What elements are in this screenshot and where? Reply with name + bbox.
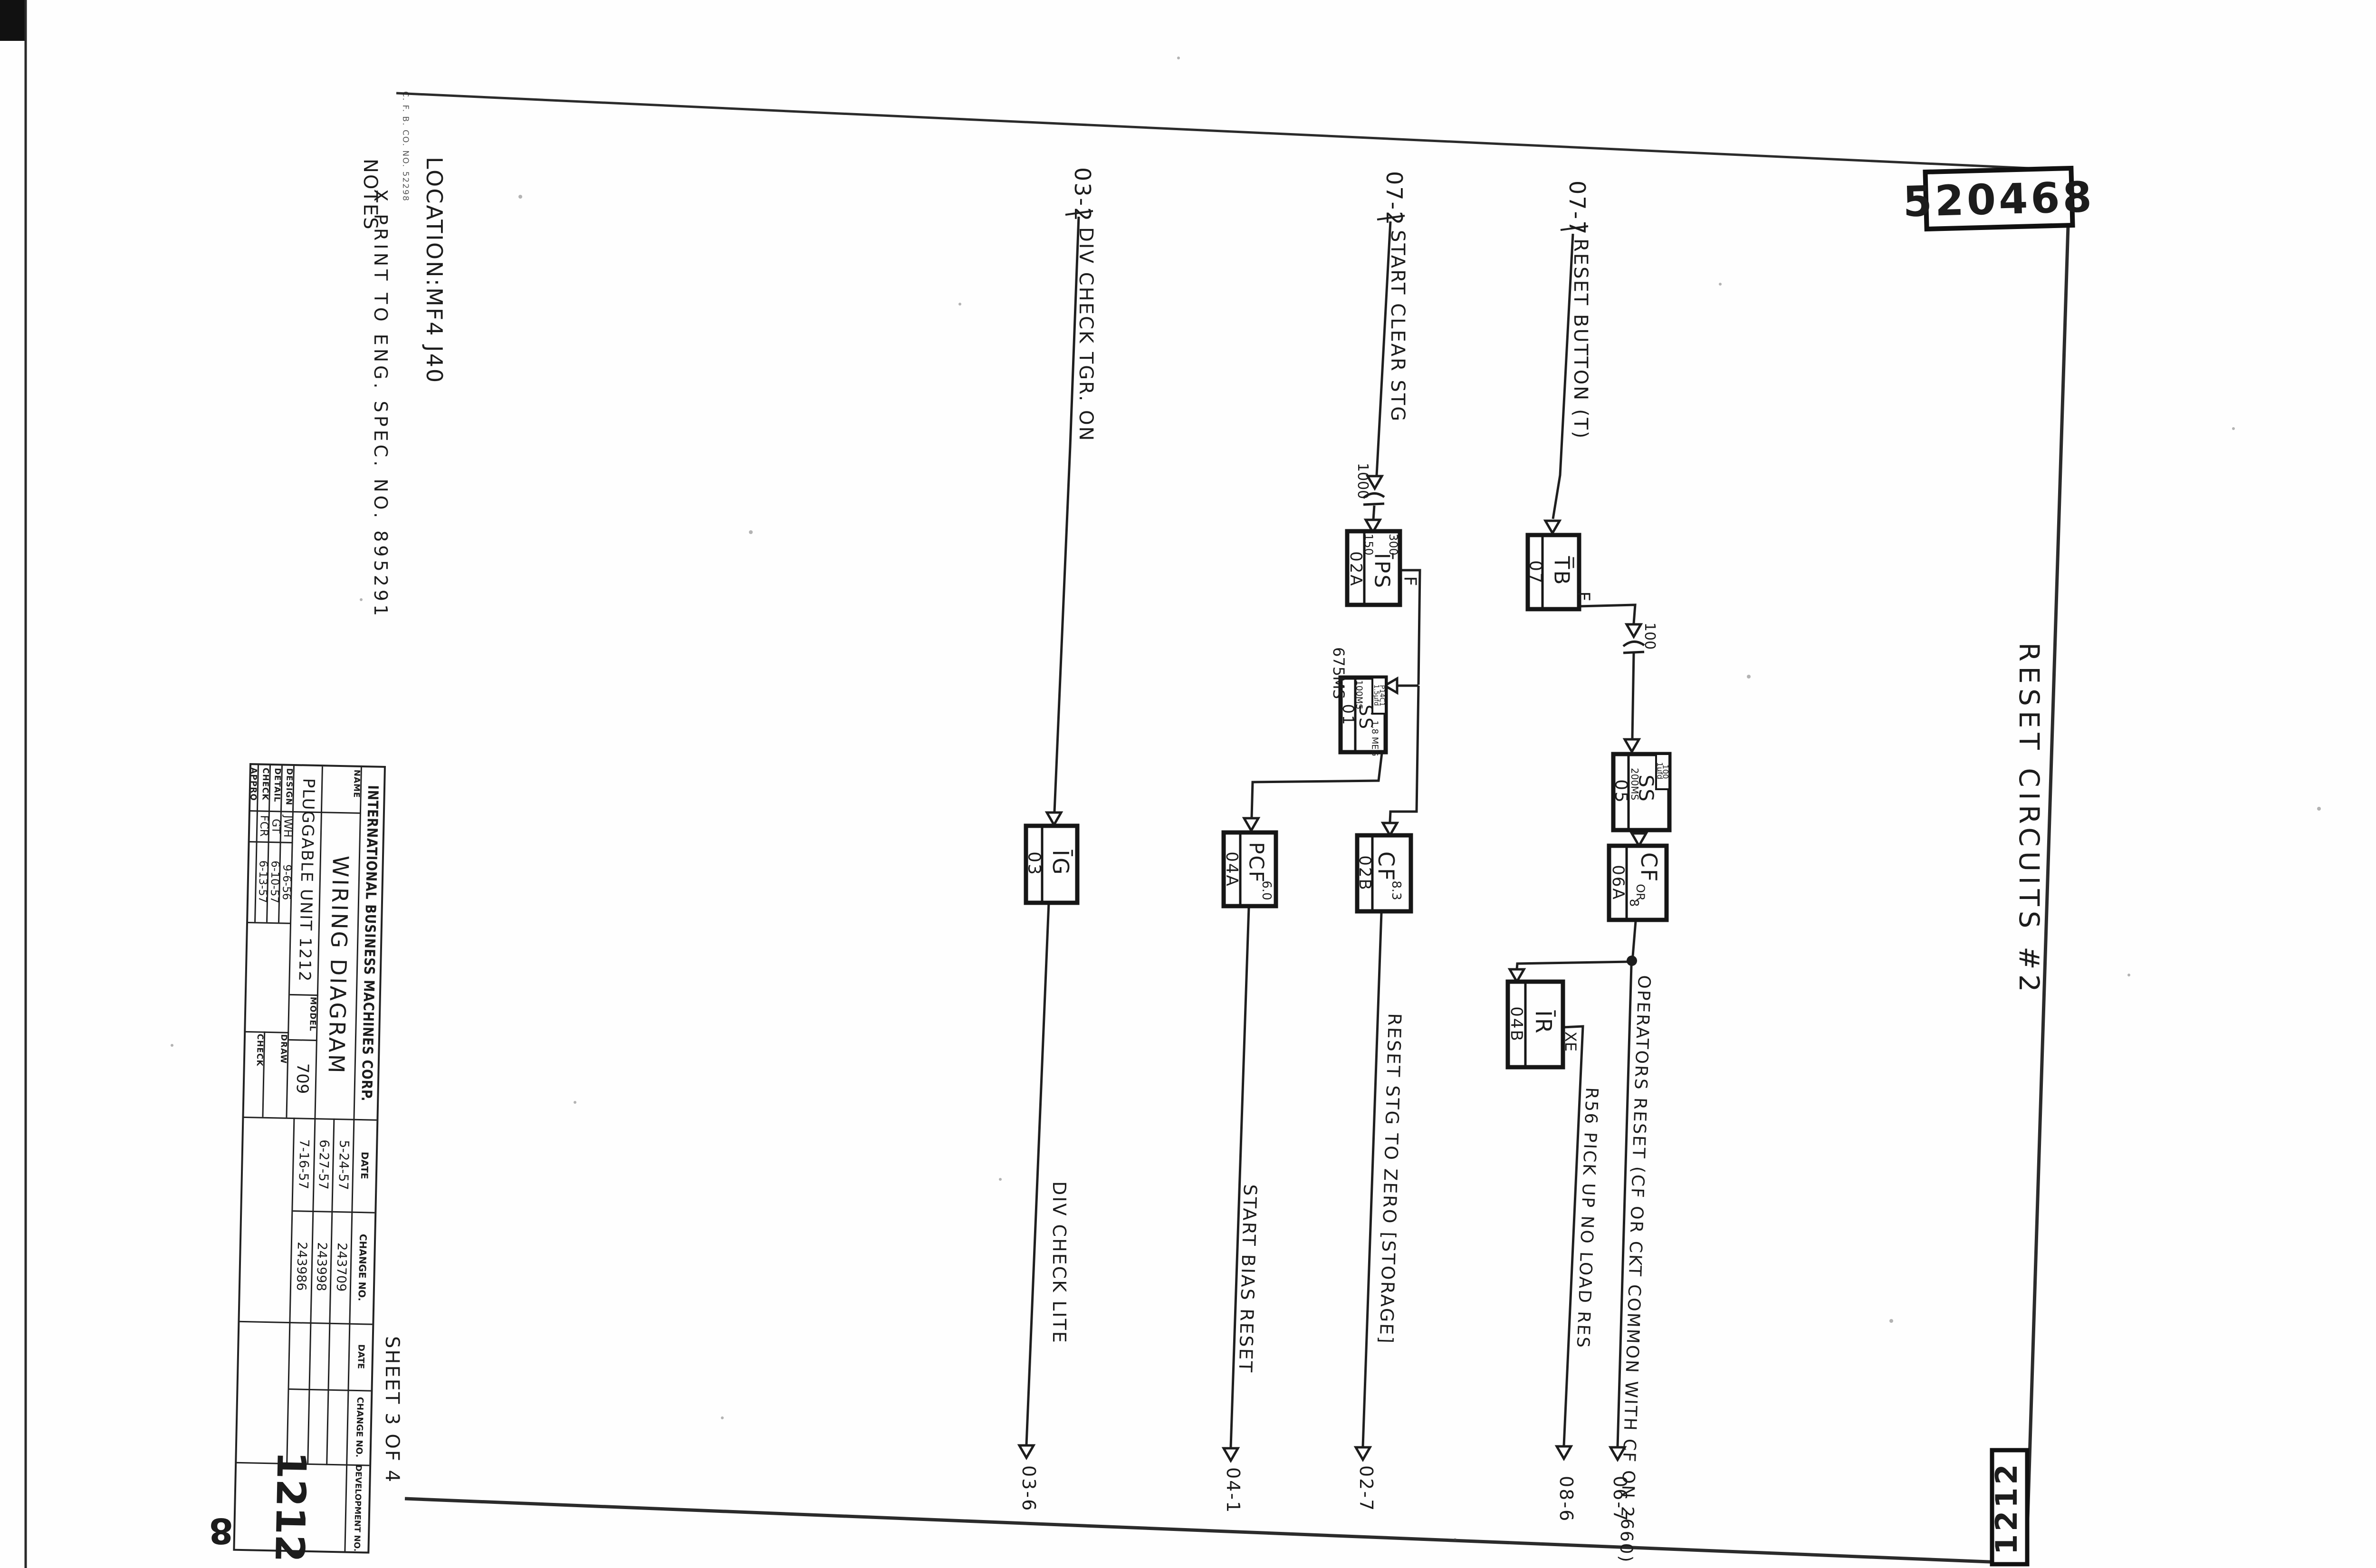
sheet-number: SHEET 3 OF 4 bbox=[381, 1336, 403, 1483]
note-print-spec: X PRINT TO ENG. SPEC. NO. 895291 bbox=[370, 189, 391, 619]
wire-node-to-ir bbox=[1517, 962, 1631, 969]
src-ref-03-2: 03-2 bbox=[1070, 167, 1095, 222]
development-header: DEVELOPMENT NO. bbox=[345, 1464, 369, 1552]
cap2-curve-icon bbox=[1623, 641, 1644, 646]
ss1-t2: 1.8 MEG bbox=[1370, 720, 1380, 756]
change-no-1: 243709 bbox=[330, 1211, 353, 1323]
ss1-delay-label: 675MS bbox=[1330, 647, 1348, 699]
check-date: 6-13-57 bbox=[256, 841, 269, 922]
pcf-val: 6.0 bbox=[1259, 880, 1274, 900]
location-label: LOCATION:MF4 J40 bbox=[422, 157, 447, 384]
drawing-number-top: 520468 bbox=[1902, 172, 2095, 227]
date-header-2: DATE bbox=[349, 1323, 372, 1390]
corner-marks: 520468 520468 1212 bbox=[206, 168, 2095, 1564]
wire-cap1-out bbox=[1373, 506, 1374, 520]
cf02b-val: 8.3 bbox=[1389, 880, 1403, 900]
model-label: MODEL bbox=[287, 994, 318, 1042]
junction-dot bbox=[1627, 956, 1637, 966]
check-initials: FCR bbox=[258, 810, 270, 841]
model-value: 709 bbox=[287, 1039, 317, 1118]
title-block: INTERNATIONAL BUSINESS MACHINES CORP. NA… bbox=[233, 763, 386, 1554]
pcf-type: PCF bbox=[1245, 842, 1268, 884]
signal-labels: 03-2 DIV CHECK TGR. ON 07-2 START CLEAR … bbox=[1018, 167, 1658, 1564]
ir-out-xe: XE bbox=[1562, 1032, 1580, 1052]
wire-ss1-to-pcf bbox=[1252, 753, 1382, 817]
arrow-into-ig bbox=[1047, 813, 1061, 825]
change-no-2: 243998 bbox=[310, 1211, 333, 1323]
name-label: NAME bbox=[321, 766, 362, 815]
ss1-c2: P14C1 bbox=[1378, 685, 1386, 707]
cap1-value: 1000 bbox=[1354, 463, 1371, 499]
wire-cf06a-out bbox=[1633, 921, 1636, 956]
design-initials: JWH bbox=[281, 811, 294, 842]
appro-label: APPRO bbox=[248, 765, 259, 813]
name-line1: WIRING DIAGRAM bbox=[316, 812, 361, 1119]
dest-04-1: 04-1 bbox=[1223, 1467, 1244, 1514]
drawing-title: RESET CIRCUITS #2 bbox=[2013, 642, 2045, 997]
frame-top bbox=[396, 93, 2070, 170]
cap2-value: 100 bbox=[1641, 622, 1658, 650]
src-name-div-check: DIV CHECK TGR. ON bbox=[1075, 227, 1097, 442]
ig-loc: 03 bbox=[1025, 851, 1044, 876]
cf06a-loc: 06A bbox=[1609, 865, 1628, 901]
ss2-c2: 100 bbox=[1661, 765, 1670, 779]
unit-number: 1212 bbox=[1989, 1461, 2024, 1555]
out-name-div-check-lite: DIV CHECK LITE bbox=[1049, 1181, 1070, 1344]
detail-initials: GT bbox=[269, 811, 282, 842]
wire-div-check-out bbox=[1026, 903, 1049, 1444]
detail-date: 6-10-57 bbox=[268, 841, 281, 922]
out-name-r56-pickup: R56 PICK UP NO LOAD RES bbox=[1573, 1087, 1601, 1349]
change-date-3: 7-16-57 bbox=[293, 1118, 315, 1211]
arrow-into-pcf bbox=[1244, 818, 1258, 831]
ips-out-f: F bbox=[1400, 576, 1420, 586]
ss1-t1: 100MS bbox=[1354, 680, 1364, 709]
src-name-reset-button: RESET BUTTON (T) bbox=[1570, 239, 1591, 440]
cf06a-val2: 8 bbox=[1627, 899, 1641, 907]
sheet-labels: RESET CIRCUITS #2 LOCATION:MF4 J40 NOTES… bbox=[359, 91, 2045, 1483]
out-name-reset-stg-zero: RESET STG TO ZERO [STORAGE] bbox=[1376, 1013, 1405, 1345]
design-date: 9-6-56 bbox=[279, 841, 293, 922]
tb-type: T̅B bbox=[1550, 555, 1575, 586]
change-header-1: CHANGE NO. bbox=[350, 1212, 374, 1324]
ips-loc: 02A bbox=[1346, 551, 1365, 587]
fine-print: C. F. B. CO. NO. 52298 bbox=[401, 91, 410, 202]
cf06a-type: CF bbox=[1636, 852, 1662, 883]
check2-label: CHECK bbox=[241, 1031, 265, 1119]
cf06a-val1: OR bbox=[1634, 884, 1647, 901]
ss2-loc: 05 bbox=[1611, 779, 1631, 804]
tb-out-f: F bbox=[1574, 592, 1593, 602]
coupling-symbols bbox=[1363, 476, 1644, 653]
wire-ips-f-out bbox=[1400, 570, 1420, 685]
ir-loc: 04B bbox=[1507, 1006, 1526, 1042]
src-name-start-clear: START CLEAR STG bbox=[1387, 230, 1408, 422]
ips-type: ĪPS bbox=[1370, 553, 1395, 589]
block-labels: 03 ĪG 02A ĪPS 300 150 F 07 T̅B F 01 SS 1… bbox=[1025, 534, 1670, 1052]
cf02b-loc: 02B bbox=[1355, 855, 1374, 891]
cap2-arrow-icon bbox=[1627, 624, 1641, 637]
ips-r2: 150 bbox=[1362, 534, 1375, 555]
change-date-2: 6-27-57 bbox=[313, 1118, 335, 1211]
wire-branch-cf02b bbox=[1390, 686, 1418, 822]
change-no-3: 243986 bbox=[290, 1210, 313, 1322]
pcf-loc: 04A bbox=[1222, 851, 1241, 888]
arrow-dest-08-6 bbox=[1557, 1446, 1571, 1459]
development-no: 1212 bbox=[234, 1462, 347, 1552]
cap1-bar-icon bbox=[1363, 504, 1384, 505]
arrow-dest-03-6 bbox=[1019, 1445, 1034, 1458]
date-header-1: DATE bbox=[353, 1119, 376, 1212]
name-line2: PLUGGABLE UNIT 1212 bbox=[290, 766, 323, 994]
wire-cf02b-out bbox=[1363, 913, 1381, 1446]
frame-bottom bbox=[405, 1499, 2025, 1563]
arrow-into-ss2 bbox=[1625, 739, 1639, 752]
src-ref-07-2: 07-2 bbox=[1381, 171, 1407, 226]
ir-type: ĪR bbox=[1531, 1010, 1556, 1035]
wire-tb-f-out bbox=[1579, 605, 1635, 623]
change-date-1: 5-24-57 bbox=[333, 1119, 354, 1212]
dest-06-7: 06-7 bbox=[1610, 1476, 1630, 1522]
draw-label: DRAW bbox=[262, 1032, 289, 1120]
arrow-into-tb bbox=[1545, 521, 1560, 533]
logic-blocks bbox=[1026, 531, 1669, 1067]
arrow-dest-02-7 bbox=[1356, 1447, 1370, 1460]
tb-loc: 07 bbox=[1526, 560, 1545, 585]
ig-type: ĪG bbox=[1048, 850, 1073, 876]
arrow-dest-04-1 bbox=[1224, 1448, 1238, 1461]
ips-r1: 300 bbox=[1387, 534, 1400, 555]
src-ref-07-7: 07-7 bbox=[1564, 181, 1590, 236]
wire-cap2-out bbox=[1632, 653, 1634, 738]
ss2-t1: 200MS bbox=[1629, 768, 1640, 800]
change-header-2: CHANGE NO. bbox=[347, 1390, 371, 1465]
wires bbox=[1026, 211, 1640, 1447]
scanned-wiring-diagram: 03 ĪG 02A ĪPS 300 150 F 07 T̅B F 01 SS 1… bbox=[0, 0, 2376, 1568]
cap2-bar-icon bbox=[1623, 652, 1644, 653]
cf02b-type: CF bbox=[1373, 851, 1399, 882]
scan-corner-blob bbox=[0, 0, 27, 41]
dest-08-6: 08-6 bbox=[1556, 1476, 1577, 1522]
dest-02-7: 02-7 bbox=[1356, 1465, 1377, 1512]
dest-03-6: 03-6 bbox=[1018, 1465, 1039, 1512]
